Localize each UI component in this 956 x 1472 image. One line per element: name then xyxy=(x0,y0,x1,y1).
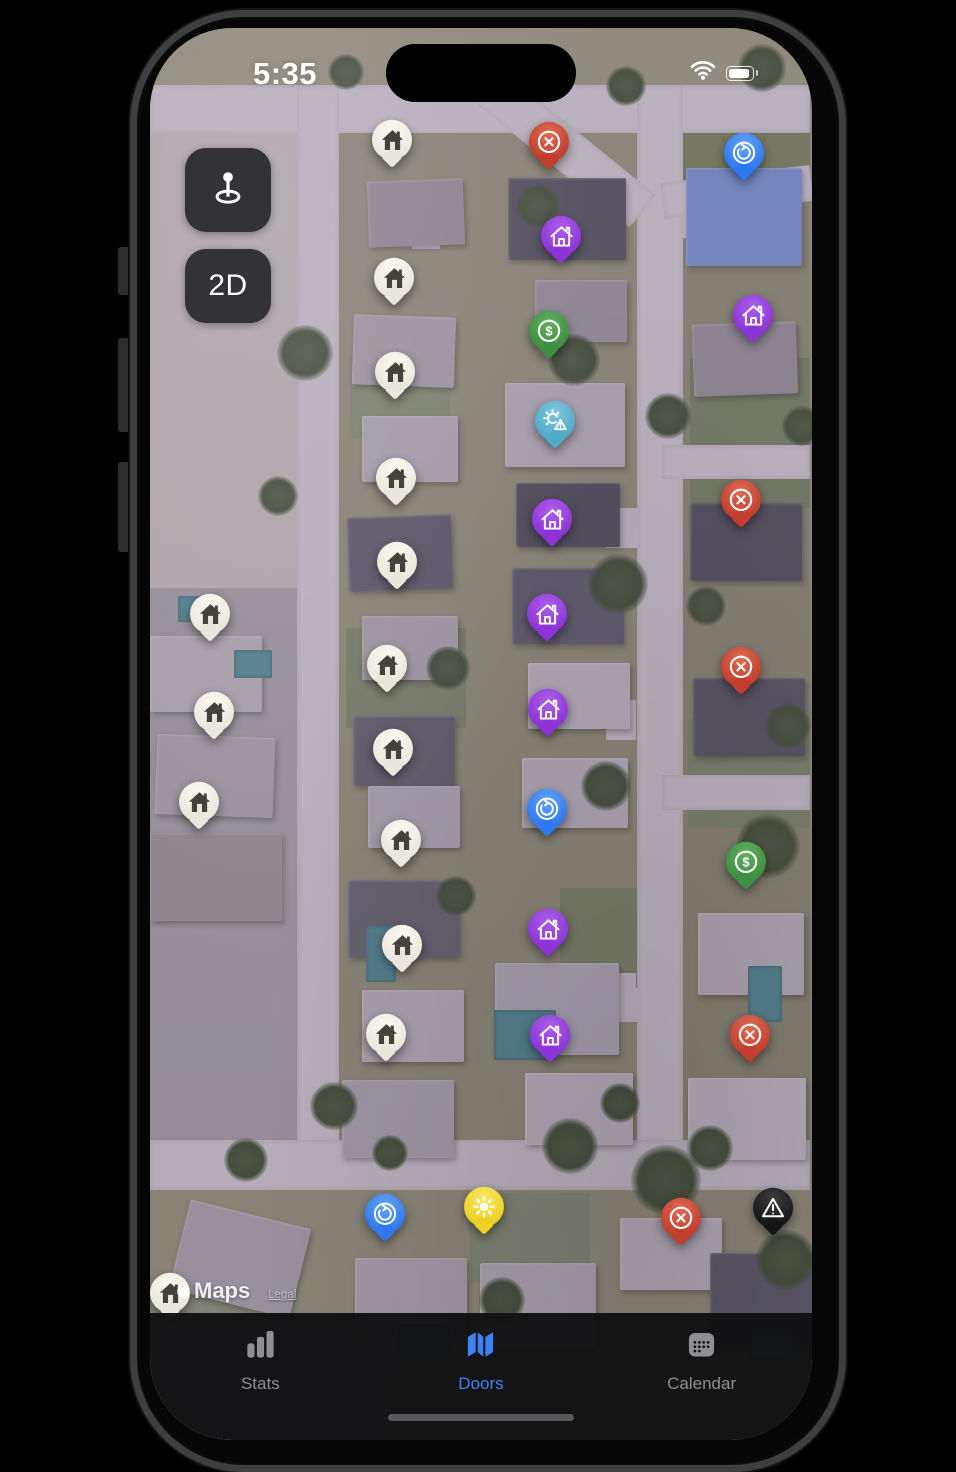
map-pin-red-x[interactable] xyxy=(661,1198,701,1238)
dynamic-island xyxy=(386,44,576,102)
map-pin-red-x[interactable] xyxy=(529,122,569,162)
map-pin-white-house[interactable] xyxy=(190,594,230,634)
battery-icon xyxy=(726,66,754,81)
map-pin-black-warning[interactable] xyxy=(753,1188,793,1228)
map-pin-white-house[interactable] xyxy=(194,692,234,732)
map-pin-white-house[interactable] xyxy=(366,1014,406,1054)
pin-drop-icon xyxy=(205,165,251,216)
map-pin-white-house[interactable] xyxy=(377,542,417,582)
map-pin-red-x[interactable] xyxy=(730,1015,770,1055)
maps-attribution: Maps xyxy=(176,1278,250,1304)
legal-link[interactable]: Legal xyxy=(268,1289,296,1301)
drop-pin-button[interactable] xyxy=(185,148,271,232)
tab-calendar[interactable]: Calendar xyxy=(622,1327,782,1394)
svg-text:$: $ xyxy=(742,854,749,869)
tab-calendar-label: Calendar xyxy=(667,1374,736,1394)
tab-stats-label: Stats xyxy=(241,1374,280,1394)
phone-frame: $ xyxy=(130,10,846,1472)
calendar-icon xyxy=(684,1327,719,1367)
map-pin-yellow-sun[interactable] xyxy=(464,1187,504,1227)
apple-logo-icon xyxy=(176,1278,191,1304)
map-pin-red-x[interactable] xyxy=(721,480,761,520)
map-pin-purple-house[interactable] xyxy=(733,295,773,335)
map-pin-blue-refresh[interactable] xyxy=(724,133,764,173)
status-time: 5:35 xyxy=(230,56,340,92)
wifi-icon xyxy=(689,60,717,86)
map-pin-green-dollar[interactable]: $ xyxy=(529,311,569,351)
map-pin-purple-house[interactable] xyxy=(528,909,568,949)
map-pin-purple-house[interactable] xyxy=(541,216,581,256)
map-pin-purple-house[interactable] xyxy=(530,1015,570,1055)
map-mode-2d-button[interactable]: 2D xyxy=(185,249,271,323)
map-pin-blue-refresh[interactable] xyxy=(527,789,567,829)
map-pin-white-house[interactable] xyxy=(374,258,414,298)
folded-map-icon xyxy=(463,1327,498,1367)
home-indicator[interactable] xyxy=(388,1414,574,1421)
map-pin-white-house[interactable] xyxy=(373,729,413,769)
map-pin-white-house[interactable] xyxy=(372,120,412,160)
map-pin-white-house[interactable] xyxy=(382,925,422,965)
map-pin-white-house[interactable] xyxy=(381,820,421,860)
map-pin-white-house[interactable] xyxy=(367,645,407,685)
map-pin-white-house[interactable] xyxy=(179,782,219,822)
tab-doors[interactable]: Doors xyxy=(401,1327,561,1394)
map-pin-white-house[interactable] xyxy=(375,352,415,392)
map-pin-red-x[interactable] xyxy=(721,647,761,687)
bar-chart-icon xyxy=(243,1327,278,1367)
map-pin-green-dollar[interactable]: $ xyxy=(726,842,766,882)
map-pin-white-house[interactable] xyxy=(376,458,416,498)
map-pin-cyan-sun-alert[interactable] xyxy=(535,401,575,441)
phone-screen: $ xyxy=(150,28,812,1440)
map-pin-purple-house[interactable] xyxy=(527,594,567,634)
map-pins-layer: $ xyxy=(150,28,812,1440)
map-pin-blue-refresh[interactable] xyxy=(365,1194,405,1234)
satellite-map[interactable]: $ xyxy=(150,28,812,1440)
map-pin-purple-house[interactable] xyxy=(532,499,572,539)
tab-doors-label: Doors xyxy=(458,1374,503,1394)
maps-brand-label: Maps xyxy=(194,1278,250,1304)
tab-stats[interactable]: Stats xyxy=(180,1327,340,1394)
map-mode-2d-label: 2D xyxy=(208,269,247,303)
map-pin-purple-house[interactable] xyxy=(528,689,568,729)
svg-text:$: $ xyxy=(545,323,552,338)
